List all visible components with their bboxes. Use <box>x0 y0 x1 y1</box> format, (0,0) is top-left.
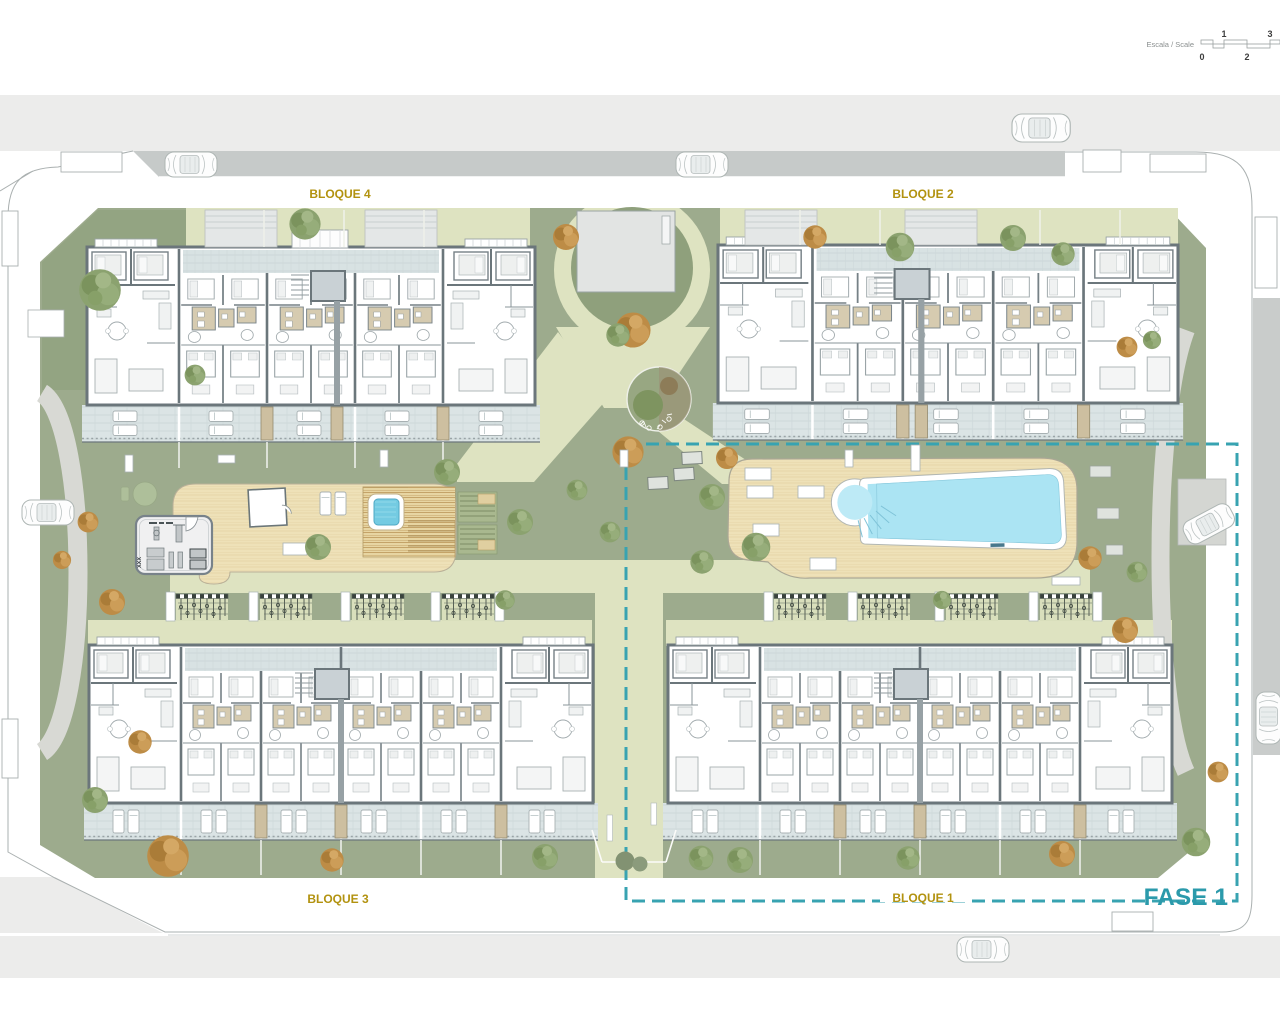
svg-text:FASE 1: FASE 1 <box>1144 884 1228 911</box>
svg-text:BLOQUE 4: BLOQUE 4 <box>309 187 371 201</box>
svg-text:BLOQUE 3: BLOQUE 3 <box>307 892 369 906</box>
svg-text:XXX: XXX <box>137 557 143 568</box>
svg-text:1: 1 <box>1221 29 1226 39</box>
svg-text:BLOQUE 1: BLOQUE 1 <box>892 891 954 905</box>
svg-text:0: 0 <box>1199 52 1204 62</box>
svg-text:3: 3 <box>1267 29 1272 39</box>
svg-text:Escala / Scale: Escala / Scale <box>1146 40 1194 49</box>
svg-text:BLOQUE 2: BLOQUE 2 <box>892 187 954 201</box>
svg-text:2: 2 <box>1244 52 1249 62</box>
